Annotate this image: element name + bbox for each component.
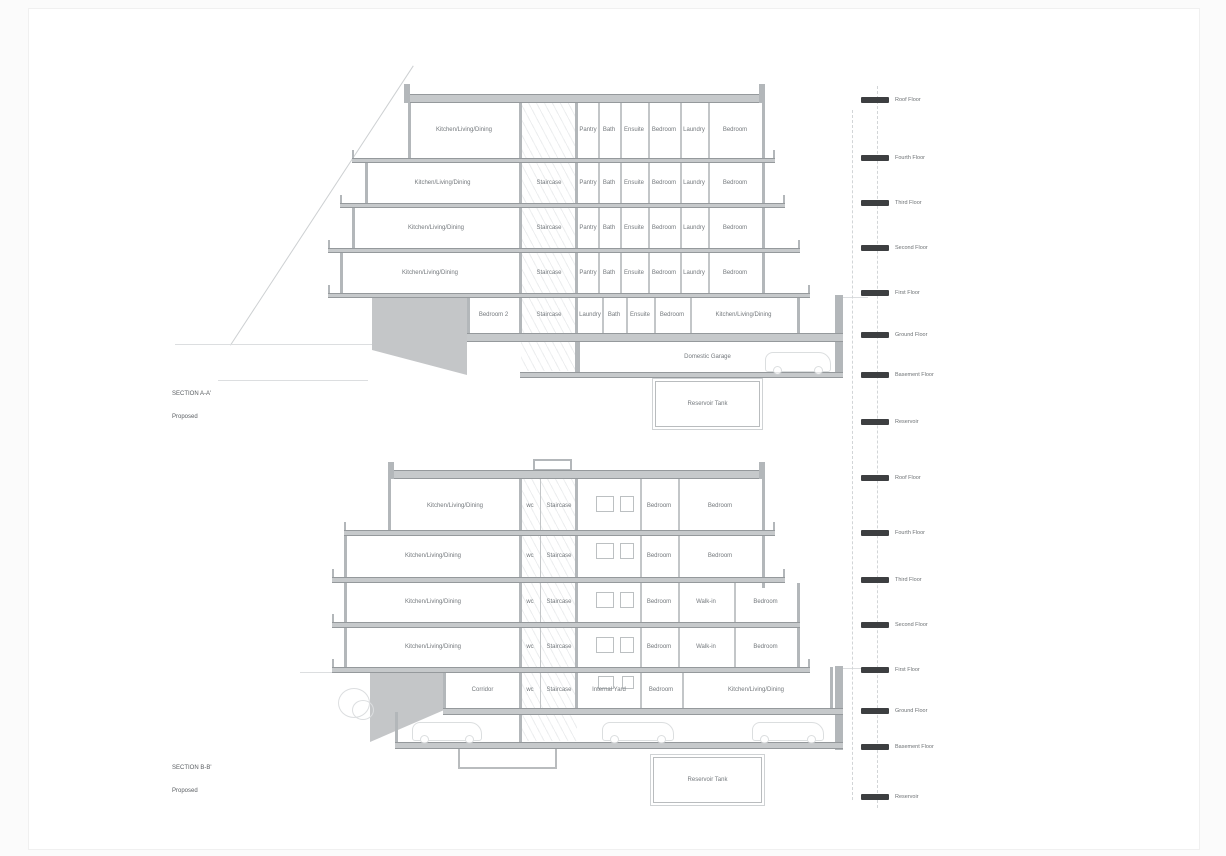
- room-bedroom: Bedroom: [678, 536, 762, 577]
- room-pantry: Pantry: [578, 253, 598, 293]
- room-bedroom: Bedroom: [678, 482, 762, 530]
- room-bath: Bath: [598, 163, 620, 203]
- room-bedroom: Bedroom: [734, 628, 797, 667]
- level-tag: [861, 245, 889, 251]
- room-bedroom: Bedroom: [648, 208, 680, 248]
- room-bedroom: Bedroom: [734, 583, 797, 622]
- room-ensuite: Ensuite: [620, 253, 648, 293]
- room-kitchen-living-dining: Kitchen/Living/Dining: [390, 482, 520, 530]
- room-bedroom: Bedroom: [708, 104, 762, 156]
- room-ensuite: Ensuite: [620, 104, 648, 156]
- level-datum-line: [877, 86, 878, 808]
- window: [596, 637, 614, 653]
- balustrade: [340, 195, 342, 203]
- level-label: Ground Floor: [895, 332, 927, 338]
- balustrade: [773, 522, 775, 530]
- room-kitchen-living-dining: Kitchen/Living/Dining: [690, 298, 797, 333]
- room-laundry: Laundry: [578, 298, 602, 333]
- car-sketch: [765, 352, 831, 372]
- room-walk-in: Walk-in: [678, 583, 734, 622]
- balustrade: [344, 522, 346, 530]
- room-pantry: Pantry: [578, 104, 598, 156]
- balustrade: [798, 614, 800, 622]
- level-tag: [861, 200, 889, 206]
- window: [620, 592, 634, 608]
- room-wc: wc: [520, 628, 540, 667]
- room-bedroom: Bedroom: [648, 104, 680, 156]
- car-sketch: [752, 722, 824, 741]
- balustrade: [332, 569, 334, 577]
- balustrade: [352, 150, 354, 158]
- room-laundry: Laundry: [680, 253, 708, 293]
- room-bedroom: Bedroom: [640, 673, 682, 708]
- window: [596, 543, 614, 559]
- room-bedroom-2: Bedroom 2: [467, 298, 520, 333]
- level-tag: [861, 475, 889, 481]
- room-bath: Bath: [598, 208, 620, 248]
- room-internal-yard: Internal Yard: [578, 673, 640, 708]
- room-kitchen-living-dining: Kitchen/Living/Dining: [682, 673, 830, 708]
- level-tag: [861, 577, 889, 583]
- room-corridor: Corridor: [445, 673, 520, 708]
- reservoir-tank-label: Reservoir Tank: [688, 401, 728, 407]
- level-label: Reservoir: [895, 794, 919, 800]
- wall: [797, 583, 800, 673]
- room-kitchen-living-dining: Kitchen/Living/Dining: [346, 628, 520, 667]
- room-bedroom: Bedroom: [640, 628, 678, 667]
- level-label: Roof Floor: [895, 475, 921, 481]
- car-sketch: [412, 722, 482, 741]
- wall: [762, 103, 765, 298]
- room-bath: Bath: [598, 104, 620, 156]
- parapet: [759, 84, 765, 103]
- stair-pit: [458, 749, 557, 769]
- tree-sketch: [352, 700, 374, 720]
- drawing-canvas: Reservoir Tank Kitchen/Living/Dining Pan…: [0, 0, 1226, 856]
- room-staircase: Staircase: [540, 482, 578, 530]
- room-bedroom: Bedroom: [648, 163, 680, 203]
- room-wc: wc: [520, 673, 540, 708]
- title-leader-a: [218, 380, 368, 381]
- room-kitchen-living-dining: Kitchen/Living/Dining: [408, 104, 520, 156]
- window: [596, 592, 614, 608]
- reservoir-tank-label: Reservoir Tank: [688, 777, 728, 783]
- room-bedroom: Bedroom: [640, 536, 678, 577]
- level-tag: [861, 744, 889, 750]
- room-staircase: Staircase: [520, 298, 578, 333]
- window: [620, 637, 634, 653]
- room-kitchen-living-dining: Kitchen/Living/Dining: [346, 536, 520, 577]
- section-b-title-line: SECTION B-B': [172, 765, 211, 773]
- room-bedroom: Bedroom: [708, 253, 762, 293]
- room-ensuite: Ensuite: [620, 208, 648, 248]
- room-staircase: Staircase: [520, 163, 578, 203]
- balustrade: [328, 285, 330, 293]
- room-bedroom: Bedroom: [640, 583, 678, 622]
- balustrade: [783, 569, 785, 577]
- ground-slab-a: [467, 333, 843, 342]
- room-kitchen-living-dining: Kitchen/Living/Dining: [340, 253, 520, 293]
- level-tag: [861, 97, 889, 103]
- room-kitchen-living-dining: Kitchen/Living/Dining: [346, 583, 520, 622]
- level-label: First Floor: [895, 290, 920, 296]
- balustrade: [332, 659, 334, 667]
- room-walk-in: Walk-in: [678, 628, 734, 667]
- level-tag: [861, 530, 889, 536]
- section-a-subtitle: Proposed: [172, 414, 211, 422]
- room-bedroom: Bedroom: [708, 208, 762, 248]
- window: [620, 543, 634, 559]
- basement-floor-b: [395, 742, 843, 749]
- level-label: Fourth Floor: [895, 530, 925, 536]
- level-tag: [861, 667, 889, 673]
- room-staircase: Staircase: [520, 253, 578, 293]
- room-staircase: Staircase: [540, 583, 578, 622]
- parapet: [759, 462, 765, 479]
- balustrade: [808, 659, 810, 667]
- room-bath: Bath: [598, 253, 620, 293]
- level-tag: [861, 155, 889, 161]
- ground-slab-b: [443, 708, 843, 715]
- level-tag: [861, 708, 889, 714]
- ground-line-left-a: [175, 344, 372, 345]
- balustrade: [332, 614, 334, 622]
- room-wc: wc: [520, 536, 540, 577]
- level-label: Third Floor: [895, 577, 922, 583]
- reservoir-tank-b: Reservoir Tank: [653, 757, 762, 803]
- balustrade: [808, 285, 810, 293]
- room-laundry: Laundry: [680, 208, 708, 248]
- level-label: Roof Floor: [895, 97, 921, 103]
- room-laundry: Laundry: [680, 104, 708, 156]
- room-bedroom: Bedroom: [654, 298, 690, 333]
- room-wc: wc: [520, 583, 540, 622]
- section-a-title: SECTION A-A' Proposed: [172, 376, 211, 436]
- level-tag: [861, 419, 889, 425]
- reservoir-tank-a: Reservoir Tank: [655, 381, 760, 427]
- room-kitchen-living-dining: Kitchen/Living/Dining: [365, 163, 520, 203]
- balustrade: [328, 240, 330, 248]
- room-pantry: Pantry: [578, 163, 598, 203]
- room-laundry: Laundry: [680, 163, 708, 203]
- dimension-line: [852, 110, 853, 800]
- room-wc: wc: [520, 482, 540, 530]
- level-label: Reservoir: [895, 419, 919, 425]
- level-label: Ground Floor: [895, 708, 927, 714]
- roof-slab-a: [404, 94, 765, 103]
- level-tag: [861, 622, 889, 628]
- level-label: Third Floor: [895, 200, 922, 206]
- room-bath: Bath: [602, 298, 626, 333]
- window: [620, 496, 634, 512]
- room-ensuite: Ensuite: [620, 163, 648, 203]
- level-label: Fourth Floor: [895, 155, 925, 161]
- balustrade: [798, 240, 800, 248]
- section-b-subtitle: Proposed: [172, 788, 211, 796]
- level-tag: [861, 332, 889, 338]
- level-label: Second Floor: [895, 245, 928, 251]
- room-bedroom: Bedroom: [648, 253, 680, 293]
- level-tag: [861, 290, 889, 296]
- parapet: [388, 462, 394, 479]
- section-a-title-line: SECTION A-A': [172, 391, 211, 399]
- balustrade: [783, 195, 785, 203]
- room-pantry: Pantry: [578, 208, 598, 248]
- room-bedroom: Bedroom: [640, 482, 678, 530]
- level-label: First Floor: [895, 667, 920, 673]
- room-kitchen-living-dining: Kitchen/Living/Dining: [352, 208, 520, 248]
- room-bedroom: Bedroom: [708, 163, 762, 203]
- level-label: Second Floor: [895, 622, 928, 628]
- level-tag: [861, 372, 889, 378]
- ground-line-right-a: [843, 297, 868, 298]
- room-staircase: Staircase: [540, 673, 578, 708]
- garage-floor-a: [520, 372, 843, 378]
- roof-slab-b: [388, 470, 765, 479]
- level-label: Basement Floor: [895, 372, 934, 378]
- car-sketch: [602, 722, 674, 741]
- section-b-title: SECTION B-B' Proposed: [172, 750, 211, 810]
- level-tag: [861, 794, 889, 800]
- room-ensuite: Ensuite: [626, 298, 654, 333]
- parapet: [404, 84, 410, 103]
- room-staircase: Staircase: [540, 628, 578, 667]
- room-staircase: Staircase: [540, 536, 578, 577]
- balustrade: [773, 150, 775, 158]
- level-label: Basement Floor: [895, 744, 934, 750]
- room-staircase: Staircase: [520, 208, 578, 248]
- window: [596, 496, 614, 512]
